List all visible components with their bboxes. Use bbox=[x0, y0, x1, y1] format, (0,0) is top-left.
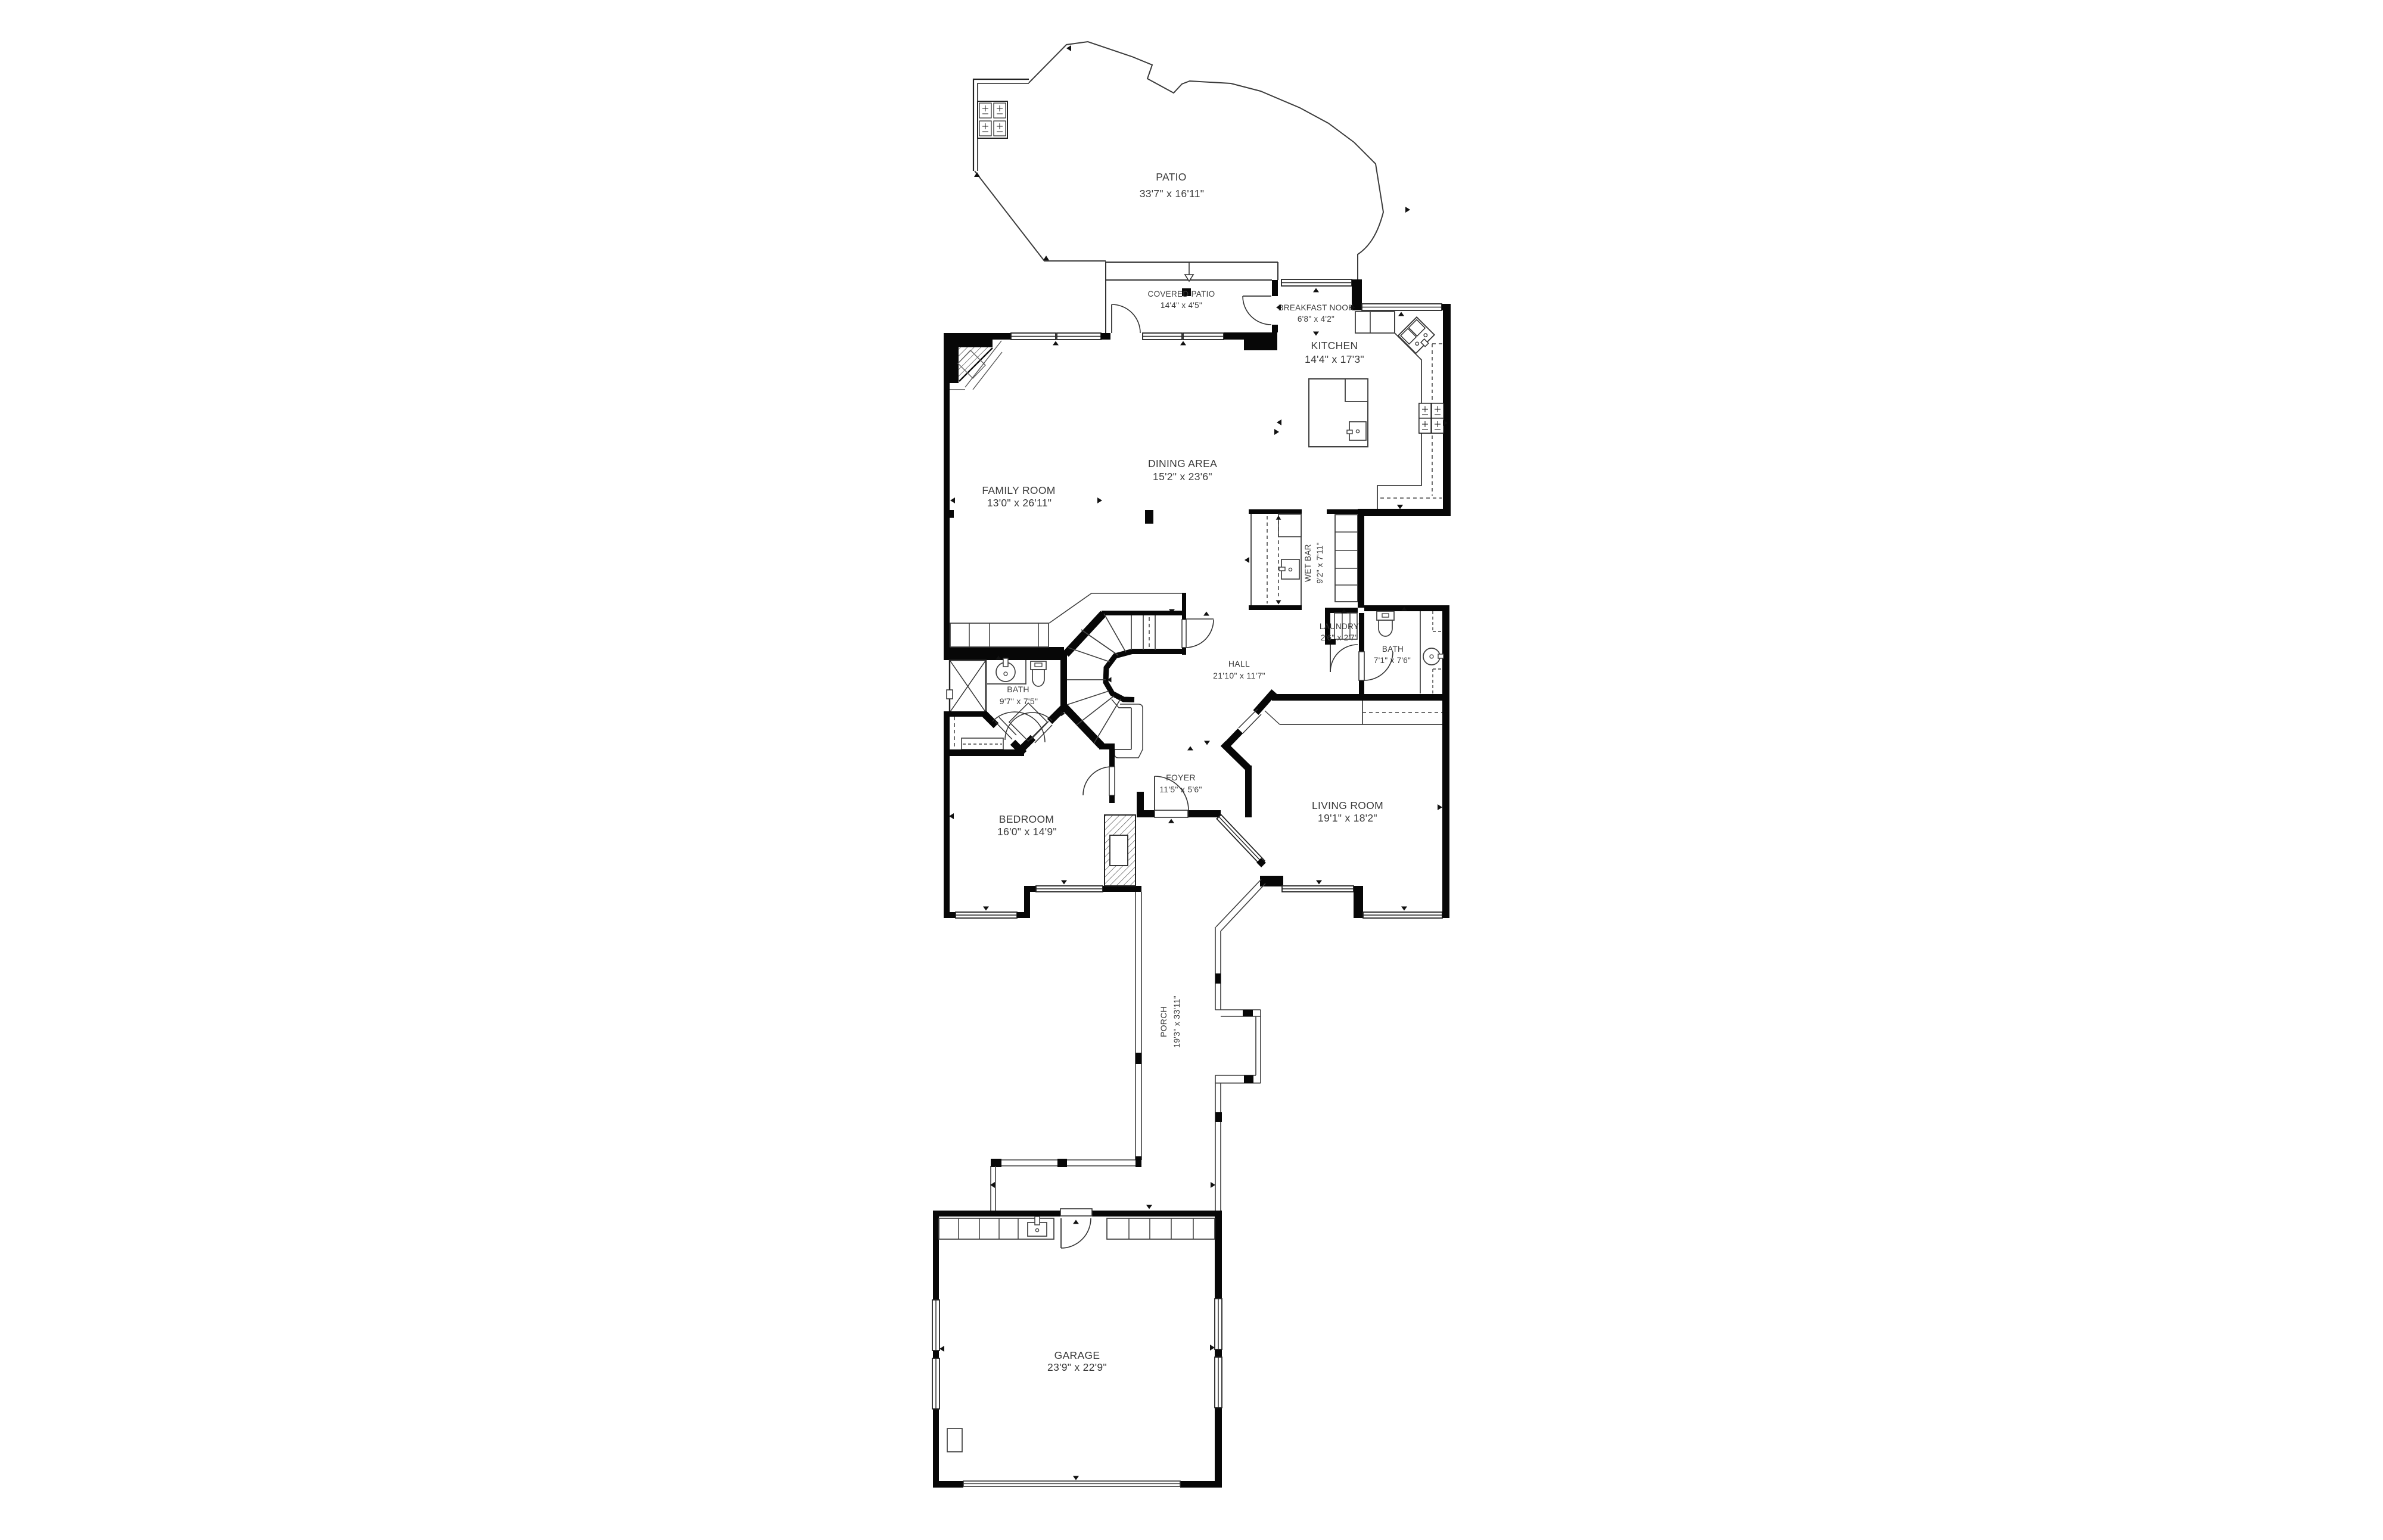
svg-text:23'9" x 22'9": 23'9" x 22'9" bbox=[1047, 1361, 1107, 1373]
svg-text:19'1" x 18'2": 19'1" x 18'2" bbox=[1318, 812, 1377, 824]
svg-text:BREAKFAST NOOK: BREAKFAST NOOK bbox=[1278, 303, 1354, 312]
svg-text:KITCHEN: KITCHEN bbox=[1311, 340, 1358, 351]
svg-text:PATIO: PATIO bbox=[1156, 171, 1186, 183]
svg-text:14'4" x 17'3": 14'4" x 17'3" bbox=[1305, 353, 1364, 365]
svg-text:PORCH: PORCH bbox=[1159, 1006, 1168, 1037]
svg-text:16'0" x 14'9": 16'0" x 14'9" bbox=[997, 826, 1057, 838]
svg-text:FAMILY ROOM: FAMILY ROOM bbox=[982, 484, 1055, 496]
svg-text:WET BAR: WET BAR bbox=[1304, 544, 1312, 581]
svg-text:COVERED PATIO: COVERED PATIO bbox=[1148, 290, 1215, 298]
svg-text:BEDROOM: BEDROOM bbox=[999, 813, 1054, 825]
svg-text:15'2" x 23'6": 15'2" x 23'6" bbox=[1153, 471, 1212, 483]
svg-text:DINING AREA: DINING AREA bbox=[1148, 458, 1217, 469]
svg-text:9'2" x 7'11": 9'2" x 7'11" bbox=[1315, 542, 1324, 583]
svg-text:GARAGE: GARAGE bbox=[1054, 1349, 1100, 1361]
svg-text:HALL: HALL bbox=[1228, 659, 1250, 668]
svg-text:FOYER: FOYER bbox=[1166, 773, 1196, 782]
svg-text:BATH: BATH bbox=[1007, 685, 1029, 694]
svg-text:21'10" x 11'7": 21'10" x 11'7" bbox=[1213, 671, 1265, 680]
svg-text:9'7" x 7'5": 9'7" x 7'5" bbox=[1000, 696, 1038, 706]
svg-text:BATH: BATH bbox=[1382, 645, 1404, 654]
svg-text:19'3" x 33'11": 19'3" x 33'11" bbox=[1172, 995, 1181, 1048]
svg-text:LIVING ROOM: LIVING ROOM bbox=[1312, 799, 1383, 811]
svg-text:33'7" x 16'11": 33'7" x 16'11" bbox=[1140, 188, 1205, 200]
svg-text:2'6" x 2'7": 2'6" x 2'7" bbox=[1321, 633, 1358, 642]
svg-text:7'1" x 7'6": 7'1" x 7'6" bbox=[1374, 656, 1411, 665]
svg-text:14'4" x 4'5": 14'4" x 4'5" bbox=[1161, 301, 1202, 310]
svg-text:LAUNDRY: LAUNDRY bbox=[1320, 622, 1359, 631]
svg-text:11'5" x 5'6": 11'5" x 5'6" bbox=[1159, 785, 1202, 794]
svg-text:13'0" x 26'11": 13'0" x 26'11" bbox=[987, 497, 1052, 509]
svg-text:6'8" x 4'2": 6'8" x 4'2" bbox=[1298, 315, 1334, 323]
